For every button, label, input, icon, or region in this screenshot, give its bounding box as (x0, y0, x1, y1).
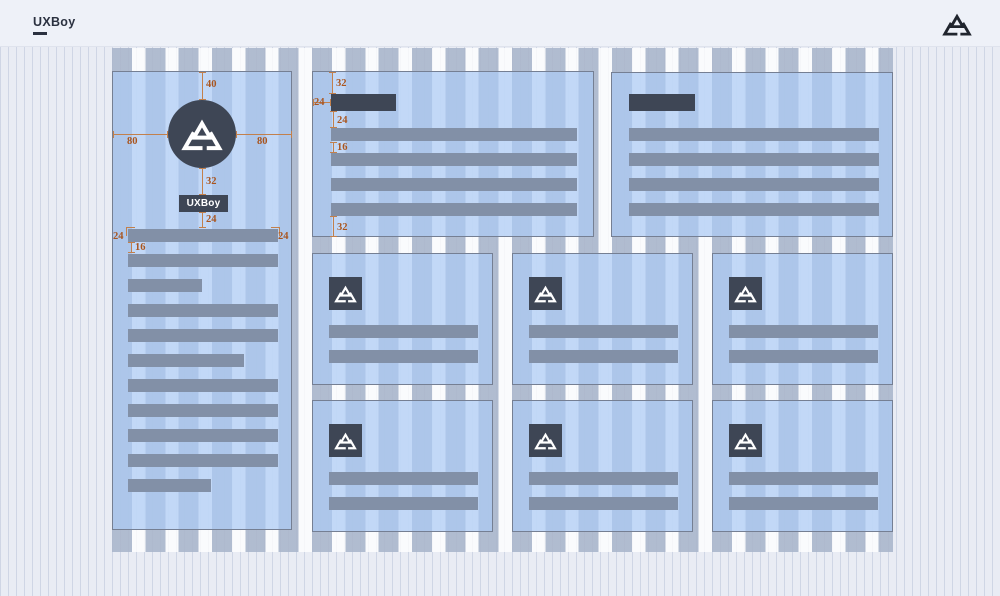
skeleton-text-line (729, 497, 878, 510)
triangle-logo-icon (529, 277, 562, 310)
skeleton-text-line (128, 254, 278, 267)
measure-label-avatar-left: 80 (127, 137, 138, 147)
measure-line-avatar-left (113, 134, 168, 135)
skeleton-text-line (128, 329, 278, 342)
skeleton-text-line (331, 178, 577, 191)
skeleton-text-line (128, 379, 278, 392)
measure-label-line-spacing: 16 (337, 143, 348, 153)
measure-line-line-spacing (131, 242, 132, 253)
triangle-logo-icon (729, 424, 762, 457)
skeleton-text-block (629, 128, 879, 228)
skeleton-text-block (128, 229, 278, 504)
triangle-logo-icon[interactable] (942, 10, 972, 38)
triangle-logo-icon (329, 277, 362, 310)
skeleton-text-block (331, 128, 577, 228)
measure-line-avatar-right (236, 134, 292, 135)
feature-wireframe-card (512, 400, 693, 532)
measure-line-text-bottom (333, 216, 334, 237)
measure-label-avatar-right: 80 (257, 137, 268, 147)
skeleton-text-line (729, 472, 878, 485)
uxboy-spec-screen: UXBoy 40 (0, 0, 1000, 596)
feature-wireframe-card (712, 253, 893, 385)
article-wireframe-card-annotated: 32 24 24 16 32 (312, 71, 594, 237)
skeleton-text-line (128, 404, 278, 417)
skeleton-text-line (329, 350, 478, 363)
avatar-circle (168, 100, 236, 168)
skeleton-text-line (128, 429, 278, 442)
app-header: UXBoy (0, 0, 1000, 47)
measure-line-title-top (332, 72, 333, 94)
measure-line-avatar-to-chip (202, 168, 203, 195)
skeleton-text-line (629, 178, 879, 191)
skeleton-text-line (128, 454, 278, 467)
skeleton-text-line (128, 229, 278, 242)
triangle-logo-icon (729, 277, 762, 310)
triangle-logo-icon (329, 424, 362, 457)
skeleton-text-line (331, 128, 577, 141)
skeleton-text-line (331, 153, 577, 166)
skeleton-text-line (128, 304, 278, 317)
triangle-logo-icon (181, 115, 223, 153)
profile-wireframe-card: 40 80 80 32 UXBoy 24 24 24 16 (112, 71, 292, 530)
skeleton-text-block (529, 472, 678, 522)
skeleton-text-line (629, 153, 879, 166)
measure-line-avatar-top (202, 72, 203, 100)
measure-label-title-left: 24 (314, 98, 325, 108)
measure-label-text-left: 24 (113, 232, 124, 242)
brand-underline (33, 32, 47, 35)
skeleton-text-block (729, 472, 878, 522)
design-canvas: 40 80 80 32 UXBoy 24 24 24 16 (0, 47, 1000, 596)
skeleton-text-block (729, 325, 878, 375)
skeleton-text-line (329, 497, 478, 510)
measure-label-avatar-to-chip: 32 (206, 177, 217, 187)
article-wireframe-card-plain (611, 72, 893, 237)
skeleton-text-line (529, 325, 678, 338)
brand-title[interactable]: UXBoy (33, 15, 75, 29)
measure-label-title-top: 32 (336, 79, 347, 89)
skeleton-text-line (329, 325, 478, 338)
skeleton-text-line (331, 203, 577, 216)
feature-wireframe-card (312, 400, 493, 532)
skeleton-title-bar (331, 94, 396, 111)
wireframe-artboard: 40 80 80 32 UXBoy 24 24 24 16 (112, 48, 893, 552)
measure-label-avatar-top: 40 (206, 80, 217, 90)
feature-wireframe-card (512, 253, 693, 385)
skeleton-text-line (629, 203, 879, 216)
measure-corner-text-left (126, 227, 135, 236)
measure-line-title-to-text (333, 111, 334, 128)
skeleton-text-line (529, 350, 678, 363)
skeleton-text-line (729, 350, 878, 363)
feature-wireframe-card (312, 253, 493, 385)
skeleton-text-line (529, 472, 678, 485)
skeleton-text-line (529, 497, 678, 510)
feature-wireframe-card (712, 400, 893, 532)
skeleton-text-line (128, 279, 202, 292)
uxboy-name-chip: UXBoy (179, 195, 228, 212)
measure-label-line-spacing: 16 (135, 243, 146, 253)
skeleton-text-block (529, 325, 678, 375)
skeleton-title-bar (629, 94, 695, 111)
measure-line-chip-to-text (202, 212, 203, 228)
measure-label-chip-to-text: 24 (206, 215, 217, 225)
triangle-logo-icon (529, 424, 562, 457)
skeleton-text-line (128, 479, 211, 492)
measure-label-text-right: 24 (278, 232, 289, 242)
skeleton-text-block (329, 325, 478, 375)
skeleton-text-line (629, 128, 879, 141)
skeleton-text-line (329, 472, 478, 485)
skeleton-text-line (128, 354, 244, 367)
measure-line-line-spacing (333, 142, 334, 153)
measure-label-text-bottom: 32 (337, 223, 348, 233)
measure-label-title-to-text: 24 (337, 116, 348, 126)
skeleton-text-line (729, 325, 878, 338)
skeleton-text-block (329, 472, 478, 522)
